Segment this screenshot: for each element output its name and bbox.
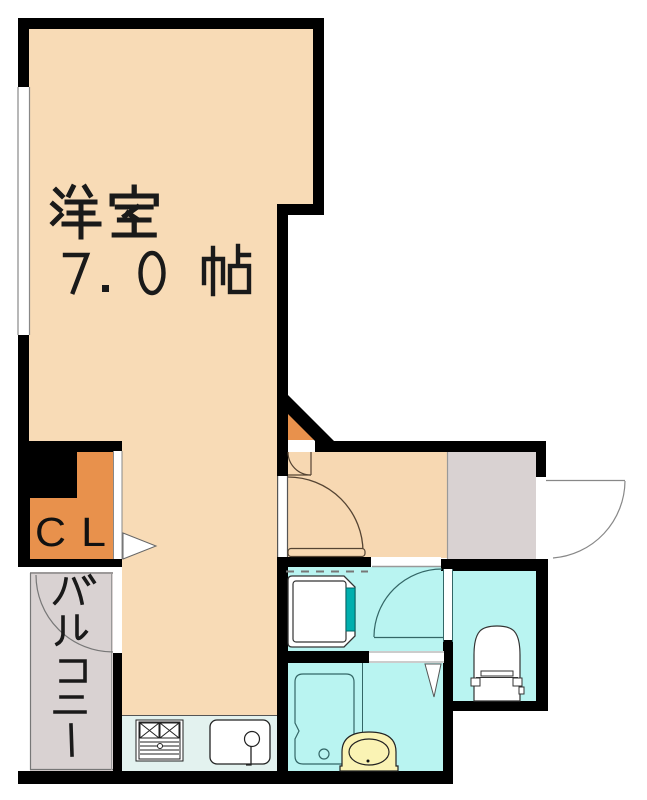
svg-text:L: L: [81, 509, 106, 555]
svg-text:C: C: [35, 509, 66, 555]
